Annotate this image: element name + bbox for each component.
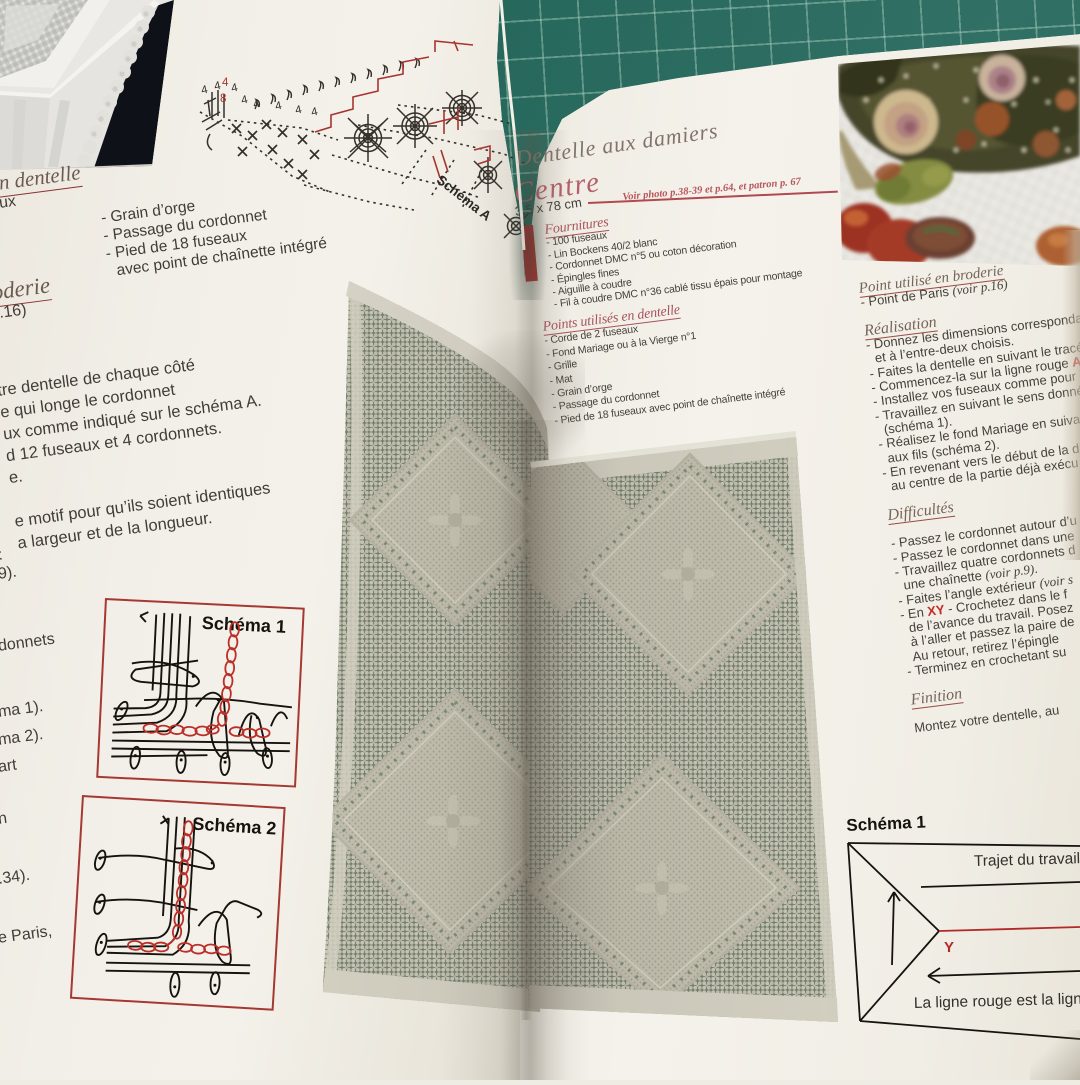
svg-text:4: 4 <box>240 94 249 107</box>
svg-text:Schéma 1: Schéma 1 <box>201 613 286 637</box>
svg-text:4: 4 <box>230 82 239 95</box>
svg-text:4: 4 <box>200 84 209 97</box>
svg-text:4: 4 <box>294 104 303 117</box>
svg-text:Schéma 2: Schéma 2 <box>192 814 277 839</box>
svg-text:La ligne rouge est la ligne: La ligne rouge est la ligne <box>914 990 1080 1012</box>
svg-text:8: 8 <box>220 93 226 105</box>
svg-text:4: 4 <box>222 77 229 89</box>
svg-text:Trajet du travail.: Trajet du travail. <box>974 850 1080 870</box>
svg-text:4: 4 <box>274 100 283 113</box>
svg-text:4: 4 <box>310 106 319 119</box>
svg-text:Y: Y <box>944 939 954 956</box>
